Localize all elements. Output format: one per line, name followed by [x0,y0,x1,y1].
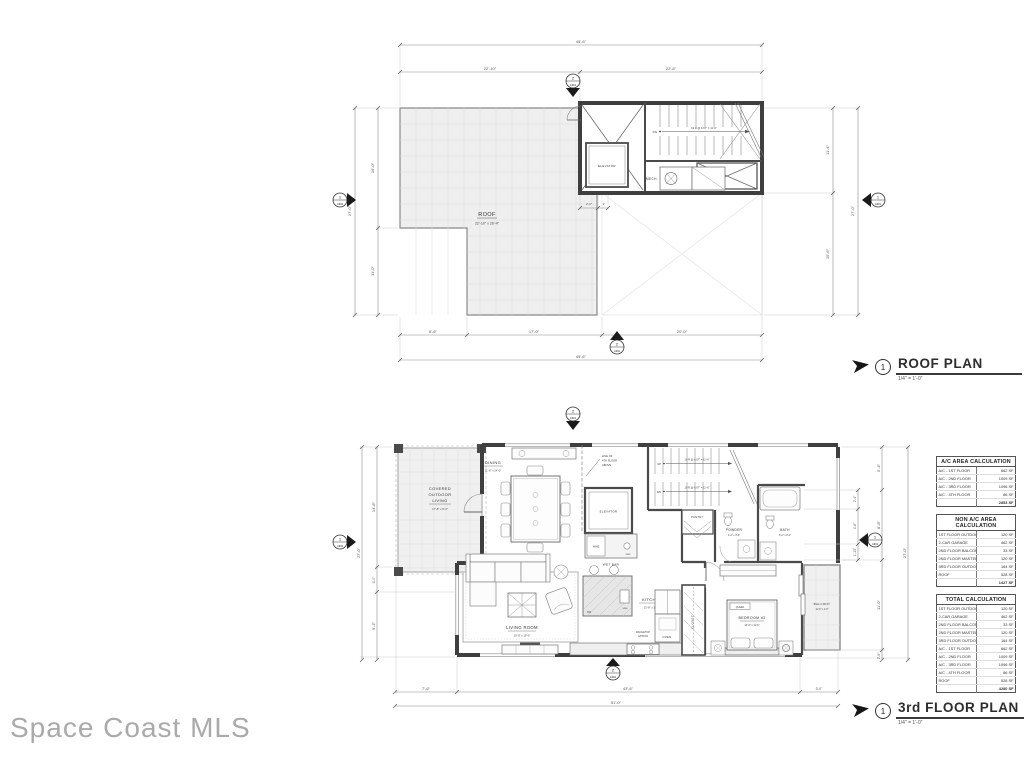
third-floor-plan-title-block: 1 3rd FLOOR PLAN 1/4" = 1'-0" [852,700,1024,726]
total-calculation-table: TOTAL CALCULATION 1ST FLOOR OUTDOOR LIVI… [936,594,1016,693]
section-marker: 2 A302 [610,331,624,354]
non-ac-area-table: NON A/C AREA CALCULATION 1ST FLOOR OUTDO… [936,514,1016,587]
dim-label: 43'-6" [623,686,634,691]
wine-label: WINE [593,546,600,549]
dim-label: 11'-0" [876,599,881,609]
dim-label: 2'-0" [586,202,592,206]
roof-plan-title: ROOF PLAN [896,356,1022,375]
row-value: 462 SF [976,613,1016,621]
living-room: LIVING ROOM 15'-8" x 19'-0" [463,554,578,654]
section-marker: 2 A301 [566,74,580,97]
dining-dim: 11'-8" x 14'-0" [485,469,501,473]
stairs: UP 19 R @ 6.67" = 11'-6" DN 19 R @ 6.67"… [655,448,757,506]
dim-label: 16'-0" [370,162,375,173]
pantry: PANTRY [682,510,713,538]
table-row: A/C - 1ST FLOOR662 SF [937,467,1016,475]
table-row: 1ST FLOOR OUTDOOR LIVING120 SF [937,531,1016,539]
note-line-2: 4TH FLOOR [602,459,617,463]
powder-dim: 4'-2" x 4'-6" [728,534,740,537]
row-label: A/C - 1ST FLOOR [937,467,977,475]
row-value: 528 SF [976,571,1016,579]
ac-area-table: A/C AREA CALCULATION A/C - 1ST FLOOR662 … [936,456,1016,507]
dim-label: 11'-4" [825,144,830,154]
table-row: 2ND FLOOR BALCONY33 SF [937,621,1016,629]
north-arrow-icon [852,358,870,373]
dim-label: 22'-10" [484,66,497,71]
roof-stair-block: ELEVATOR MECH. DN 19 R @ 6.67" = 11'-6" [567,103,764,193]
row-label: A/C - 4TH FLOOR [937,669,977,677]
table-row: ROOF528 SF [937,677,1016,685]
dim-label: 20'-0" [677,329,688,334]
total-label [937,499,977,507]
dim-label: 15'-6" [825,248,830,259]
roof-stair-note: 19 R @ 6.67" = 11'-6" [691,126,717,130]
row-label: 2-CAR GARAGE [937,539,977,547]
dim-label: 9" [603,202,606,206]
row-value: 120 SF [976,555,1016,563]
row-value: 120 SF [976,531,1016,539]
row-value: 1009 SF [976,653,1016,661]
dim-label: 45'-6" [576,39,587,44]
dim-label: 14'-8" [371,501,376,512]
row-label: 2ND FLOOR MASTER TERRACE [937,629,977,637]
row-value: 1009 SF [976,475,1016,483]
row-label: 1ST FLOOR OUTDOOR LIVING [937,531,977,539]
row-label: ROOF [937,677,977,685]
table-row: 3RD FLOOR OUTDOOR LIVING164 SF [937,637,1016,645]
table-row: ROOF528 SF [937,571,1016,579]
table-row: A/C - 3RD FLOOR1096 SF [937,483,1016,491]
covered-dim: 17'-8" x 9'-4" [432,507,448,511]
dim-label: 4'-6" [853,522,857,529]
bedroom-dim: 12'-6" x 11'-6" [744,624,759,627]
covered-label-2: OUTDOOR [429,492,452,497]
row-value: 662 SF [976,467,1016,475]
table-row: A/C - 3RD FLOOR1096 SF [937,661,1016,669]
covered-label-3: LIVING [432,498,447,503]
dim-label: 7'-6" [422,686,431,691]
table-row: 2ND FLOOR MASTER TERRACE120 SF [937,629,1016,637]
roof-dn-label: DN [653,130,657,134]
note-line-3: ABOVE [602,463,611,467]
row-value: 462 SF [976,539,1016,547]
elevator: ELEVATOR [585,488,632,533]
detail-number-bubble: 1 [875,359,891,375]
dim-label: 22'-8" [666,66,677,71]
table-row: 3RD FLOOR OUTDOOR LIVING164 SF [937,563,1016,571]
row-value: 120 SF [976,605,1016,613]
dim-label: 11'-0" [370,265,375,275]
row-label: A/C - 1ST FLOOR [937,645,977,653]
total-label [937,685,977,693]
row-label: 2-CAR GARAGE [937,613,977,621]
dim-label: 1'-10" [853,547,857,556]
elevator-label: ELEVATOR [600,510,618,514]
row-label: 3RD FLOOR OUTDOOR LIVING [937,637,977,645]
table-row: A/C - 4TH FLOOR86 SF [937,491,1016,499]
row-label: 2ND FLOOR BALCONY [937,547,977,555]
table-row: A/C - 2ND FLOOR1009 SF [937,475,1016,483]
marker-sheet: A301 [570,83,577,87]
dim-label: 2'-0" [877,652,881,659]
roof-elevator-label: ELEVATOR [598,164,616,168]
kitchen: SINK DW KITCHEN 13'-8" x 10'-0" RANGETOP… [570,566,685,656]
third-floor-plan-drawing: COVERED OUTDOOR LIVING 17'-8" x 9'-4" [330,400,950,712]
dn-label: DN [657,490,661,494]
dim-label: 9'-4" [371,621,376,630]
bathroom: BATH 5'-2" x 8'-4" [760,487,800,560]
third-floor-plan-scale: 1/4" = 1'-0" [896,719,1024,726]
row-label: 2ND FLOOR MASTER TERRACE [937,555,977,563]
row-value: 86 SF [976,491,1016,499]
roof-dim-label: 22'-10" x 26'-4" [475,222,500,226]
table-row: A/C - 4TH FLOOR86 SF [937,669,1016,677]
island-sink-label: SINK [622,608,628,610]
section-marker: 2 A302 [606,658,620,680]
roof-label: ROOF [478,212,496,218]
balcony-dim: 11'-6" x 4'-0" [816,609,829,611]
area-calculation-tables: A/C AREA CALCULATION A/C - 1ST FLOOR662 … [936,456,1016,693]
roof-plan-scale: 1/4" = 1'-0" [896,375,1022,382]
row-value: 164 SF [976,563,1016,571]
dim-label: 27'-0" [356,547,361,558]
total-value: 1427 SF [976,579,1016,587]
queen-label: QUEEN [736,606,745,609]
row-value: 662 SF [976,645,1016,653]
third-floor-plan-title: 3rd FLOOR PLAN [896,700,1024,719]
dim-label: 8'-6" [429,329,438,334]
closet: CLOSET [682,585,705,655]
dim-label: 3'-0" [372,576,376,584]
dim-label: 3'-0" [816,687,824,691]
row-label: 1ST FLOOR OUTDOOR LIVING [937,605,977,613]
up-label: UP [657,462,661,466]
powder-label: POWDER [726,528,743,532]
note-line-1: LINE OF [602,454,613,458]
marker-sheet: A302 [337,544,344,548]
pantry-label: PANTRY [691,515,703,519]
marker-sheet: A301 [875,202,882,206]
living-room-dim: 15'-8" x 19'-0" [514,634,531,638]
dim-label: 17'-0" [529,329,540,334]
rangetop-label-2: w/HOOD [638,635,648,638]
dim-label: 27'-0" [347,205,352,216]
balcony: BALCONY 11'-6" x 4'-0" [799,565,840,650]
table-row: A/C - 1ST FLOOR662 SF [937,645,1016,653]
bath-label: BATH [780,528,790,532]
wet-bar-label: WET BAR [603,563,620,567]
table-title: NON A/C AREA CALCULATION [937,515,1016,531]
row-label: A/C - 3RD FLOOR [937,483,977,491]
dim-label: 2'-4" [853,495,857,502]
sink-label: SINK [625,554,631,556]
marker-sheet: A301 [570,416,577,420]
dim-label: 51'-0" [611,700,622,705]
oven-label: OVEN [662,635,671,639]
row-value: 33 SF [976,547,1016,555]
table-title: TOTAL CALCULATION [937,595,1016,605]
total-value: 2853 SF [976,499,1016,507]
dim-label: 8'-8" [876,520,881,529]
table-row: 1ST FLOOR OUTDOOR LIVING120 SF [937,605,1016,613]
row-label: A/C - 2ND FLOOR [937,653,977,661]
table-row: 2-CAR GARAGE462 SF [937,613,1016,621]
section-marker: 2 A301 [566,407,580,430]
dining-label: DINING [485,460,501,465]
row-label: 3RD FLOOR OUTDOOR LIVING [937,563,977,571]
marker-sheet: A301 [872,542,879,546]
row-value: 528 SF [976,677,1016,685]
section-marker: 1 A301 [859,533,882,547]
north-arrow-icon [852,702,870,717]
stair-note-dn: 19 R @ 6.67" = 11'-6" [685,486,710,490]
bath-dim: 5'-2" x 8'-4" [779,534,791,537]
roof-mech-label: MECH. [646,177,658,181]
living-room-label: LIVING ROOM [506,625,538,630]
section-marker: 1 A302 [333,193,356,207]
row-label: 2ND FLOOR BALCONY [937,621,977,629]
marker-sheet: A302 [337,202,344,206]
floor-plan-sheet: ROOF 22'-10" x 26'-4" ELEVATOR [0,0,1024,768]
detail-number-bubble: 1 [875,703,891,719]
row-label: A/C - 3RD FLOOR [937,661,977,669]
bedroom-label: BEDROOM #3 [738,616,765,620]
total-value: 4280 SF [976,685,1016,693]
row-value: 1096 SF [976,483,1016,491]
total-label [937,579,977,587]
table-row: 2-CAR GARAGE462 SF [937,539,1016,547]
marker-sheet: A302 [614,349,621,353]
balcony-label: BALCONY [814,602,831,606]
covered-label-1: COVERED [429,486,451,491]
powder-room: POWDER 4'-2" x 4'-6" [720,513,755,562]
marker-sheet: A302 [610,675,617,679]
dining-room: DINING 11'-8" x 14'-0" [483,448,576,552]
table-row: 2ND FLOOR MASTER TERRACE120 SF [937,555,1016,563]
rangetop-label-1: RANGETOP [636,631,650,634]
wet-bar: WINE SINK WET BAR [585,534,637,567]
dim-label: 27'-0" [850,205,855,216]
row-label: A/C - 4TH FLOOR [937,491,977,499]
row-value: 164 SF [976,637,1016,645]
row-value: 86 SF [976,669,1016,677]
table-row: A/C - 2ND FLOOR1009 SF [937,653,1016,661]
dim-label: 5'-4" [876,463,881,472]
mls-watermark: Space Coast MLS [10,712,251,744]
section-marker: 1 A301 [862,193,885,207]
stair-note-up: 19 R @ 6.67" = 11'-6" [685,458,710,462]
closet-label: CLOSET [691,615,695,629]
roof-plan-drawing: ROOF 22'-10" x 26'-4" ELEVATOR [330,35,890,385]
table-row: 2ND FLOOR BALCONY33 SF [937,547,1016,555]
row-label: A/C - 2ND FLOOR [937,475,977,483]
dim-label: 45'-6" [576,354,587,359]
row-value: 33 SF [976,621,1016,629]
dim-label: 27'-0" [902,547,907,558]
bedroom-3: QUEEN BEDROOM #3 12'-6" x 11'-6" [706,562,793,655]
row-label: ROOF [937,571,977,579]
roof-plan-title-block: 1 ROOF PLAN 1/4" = 1'-0" [852,356,1022,382]
row-value: 120 SF [976,629,1016,637]
section-marker: 1 A302 [333,535,356,549]
table-title: A/C AREA CALCULATION [937,457,1016,467]
row-value: 1096 SF [976,661,1016,669]
line-of-4th-floor-note: LINE OF 4TH FLOOR ABOVE [586,454,617,476]
